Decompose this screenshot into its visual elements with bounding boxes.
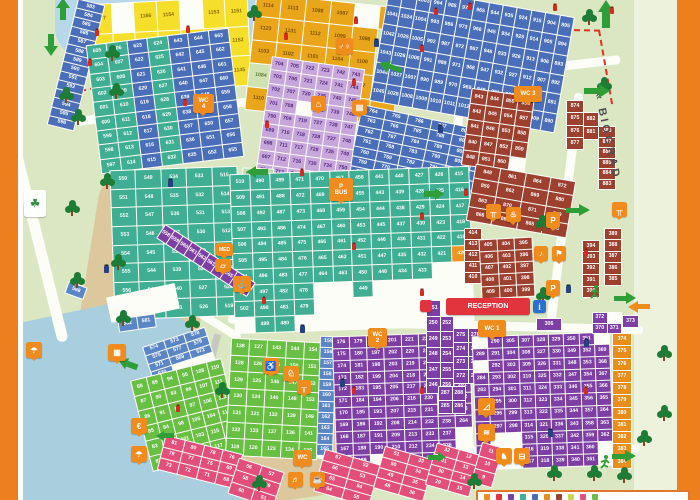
pitch-854: 854 <box>500 109 517 125</box>
pitch-294: 294 <box>490 385 505 397</box>
pitch-346: 346 <box>566 382 581 394</box>
pitch-612: 612 <box>117 127 138 143</box>
fire-hydrant-icon <box>464 190 468 196</box>
pitch-544: 544 <box>139 263 164 281</box>
pitch-581: 581 <box>137 315 156 329</box>
pitch-366: 366 <box>596 381 611 393</box>
fire-hydrant-icon <box>284 34 288 40</box>
pitch-717: 717 <box>291 141 307 155</box>
pitch-599: 599 <box>97 129 118 145</box>
pitch-454: 454 <box>351 202 370 218</box>
playground-pin-glyph: ◿ <box>483 402 489 411</box>
pitch-129: 129 <box>230 372 248 389</box>
pitch-122: 122 <box>227 422 245 439</box>
wc3-dog-pin: WC 3 <box>514 86 542 102</box>
pitch-422: 422 <box>432 231 451 247</box>
pitch-335: 335 <box>551 407 566 419</box>
pitch-859: 859 <box>511 141 528 157</box>
pitch-881: 881 <box>584 127 598 140</box>
pitch-264: 264 <box>455 416 471 427</box>
pitch-248: 248 <box>427 348 440 363</box>
pitch-341: 341 <box>568 442 583 454</box>
exchange-pin: € <box>131 418 147 434</box>
pitch-703: 703 <box>269 70 285 84</box>
pitch-367: 367 <box>596 369 611 381</box>
laundry-iron-pin: ▱ <box>215 259 231 272</box>
pitch-137: 137 <box>263 424 281 441</box>
pitch-620: 620 <box>133 81 154 97</box>
camp-logo: ☘ <box>24 190 46 217</box>
zone-brown-395: 4054043954064033964074023974084013984094… <box>478 237 535 300</box>
legend-swatch <box>556 494 562 500</box>
pitch-313: 313 <box>521 408 536 420</box>
pitch-448: 448 <box>373 265 392 281</box>
fire-hydrant-icon <box>584 250 588 256</box>
pitch-140: 140 <box>265 391 283 408</box>
pitch-476: 476 <box>293 252 312 268</box>
water-tap-pin-3: ╥ <box>297 380 311 394</box>
pitch-168: 168 <box>336 432 352 443</box>
pitch-219: 219 <box>402 358 418 369</box>
pitch-482: 482 <box>274 284 293 300</box>
pitch-323: 323 <box>536 395 551 407</box>
pitch-441: 441 <box>370 170 389 186</box>
tree-icon <box>103 176 112 185</box>
parking-pin-2-glyph: P <box>550 284 555 293</box>
pitch-187: 187 <box>353 431 369 442</box>
pitch-646: 646 <box>192 60 213 76</box>
pitch-739: 739 <box>327 106 343 120</box>
pitch-175: 175 <box>333 349 349 360</box>
pitch-605: 605 <box>87 44 108 60</box>
pitch-314: 314 <box>521 420 536 432</box>
reception-sign: RECEPTION <box>446 298 530 315</box>
water-tap-pin-2: ╥ <box>612 202 627 217</box>
pitch-330: 330 <box>549 346 564 358</box>
pitch-496: 496 <box>254 269 273 285</box>
pitch-361: 361 <box>583 454 598 466</box>
pitch-363: 363 <box>597 417 612 429</box>
zone-brown-874: 874875876877 <box>566 100 584 150</box>
water-point-icon <box>548 430 553 437</box>
running-man-icon <box>598 454 612 470</box>
pitch-895: 895 <box>557 16 573 37</box>
pitch-427: 427 <box>409 168 428 184</box>
pitch-356: 356 <box>581 394 596 406</box>
pitch-322: 322 <box>536 407 551 419</box>
pitch-655: 655 <box>222 143 243 159</box>
pitch-364: 364 <box>597 405 612 417</box>
tree-icon <box>73 275 82 284</box>
pitch-842: 842 <box>468 104 485 120</box>
pitch-530: 530 <box>189 224 214 242</box>
pitch-551: 551 <box>111 189 136 207</box>
pitch-209: 209 <box>387 430 403 441</box>
pitch-1112: 1112 <box>302 22 328 47</box>
beach-shower-pin: ☂ <box>26 342 42 358</box>
zone-purple-reception-c: 287288285286 <box>438 386 466 414</box>
bbq-pin-glyph: ♨ <box>510 210 517 219</box>
pitch-370: 370 <box>593 324 607 334</box>
pitch-348: 348 <box>565 358 580 370</box>
pitch-890: 890 <box>540 112 556 133</box>
pitch-138: 138 <box>231 339 249 356</box>
pitch-446: 446 <box>372 233 391 249</box>
pitch-444: 444 <box>371 201 390 217</box>
pitch-179: 179 <box>350 336 366 347</box>
camp-logo-glyph: ☘ <box>30 197 40 210</box>
first-aid-pin: MED <box>216 243 233 256</box>
legend-swatch <box>484 494 490 500</box>
laundry-iron-pin-glyph: ▱ <box>220 262 225 270</box>
zone-brown-861: 8498618648728508628698808638708718798668… <box>466 164 577 239</box>
pitch-624: 624 <box>148 36 169 52</box>
pitch-164: 164 <box>317 434 332 444</box>
pitch-598: 598 <box>99 143 120 159</box>
water-point-icon <box>374 40 379 47</box>
green-direction-arrow <box>598 0 614 28</box>
tree-icon <box>112 86 121 95</box>
pitch-254: 254 <box>441 348 454 363</box>
pitch-1123: 1123 <box>253 17 279 42</box>
pitch-408: 408 <box>481 275 498 287</box>
pitch-160: 160 <box>319 391 334 401</box>
pitch-625: 625 <box>149 51 170 67</box>
pitch-315: 315 <box>522 432 537 444</box>
pitch-319: 319 <box>537 444 552 456</box>
pitch-601: 601 <box>94 101 115 117</box>
bungalow-pin: ⌂ <box>311 96 326 111</box>
pitch-841: 841 <box>466 120 483 136</box>
zone-green-119: 1381271431441541281261451501511291251461… <box>225 338 323 461</box>
pitch-407: 407 <box>481 263 498 275</box>
trailer-pin: ⊟ <box>514 448 530 464</box>
pitch-652: 652 <box>202 145 223 161</box>
pitch-274: 274 <box>454 343 468 356</box>
pitch-658: 658 <box>217 100 238 116</box>
pitch-131: 131 <box>228 405 246 422</box>
pitch-392: 392 <box>583 264 599 274</box>
pitch-188: 188 <box>354 443 370 454</box>
pitch-439: 439 <box>390 185 409 201</box>
legend-swatch <box>508 494 514 500</box>
parking-pin: P <box>546 212 560 228</box>
pitch-405: 405 <box>480 240 497 252</box>
pitch-506: 506 <box>233 238 252 254</box>
swimming-pin: ≋ <box>478 424 495 441</box>
pitch-385: 385 <box>605 275 621 285</box>
pitch-502: 502 <box>235 302 254 318</box>
pitch-704: 704 <box>271 57 287 71</box>
tree-icon <box>620 470 629 479</box>
pitch-195: 195 <box>369 383 385 394</box>
pitch-287: 287 <box>439 387 452 400</box>
pitch-130: 130 <box>229 389 247 406</box>
bar-pin: ☕ <box>310 472 325 487</box>
pitch-460: 460 <box>331 219 350 235</box>
fire-hydrant-icon <box>610 8 614 14</box>
pitch-705: 705 <box>286 59 302 73</box>
pitch-206: 206 <box>386 395 402 406</box>
zone-purple-370: 372370371 <box>592 312 622 334</box>
pitch-386: 386 <box>605 263 621 273</box>
toilets-pin-glyph: ♂♀ <box>339 42 351 51</box>
pitch-858: 858 <box>513 126 530 142</box>
pitch-208: 208 <box>387 418 403 429</box>
fire-hydrant-icon <box>352 388 356 394</box>
pitch-741: 741 <box>331 79 347 93</box>
pitch-371: 371 <box>608 324 622 334</box>
pitch-469: 469 <box>310 188 329 204</box>
green-direction-arrow <box>584 84 610 98</box>
pitch-328: 328 <box>534 335 549 347</box>
pitch-641: 641 <box>171 62 192 78</box>
pitch-381: 381 <box>613 420 631 431</box>
pitch-723: 723 <box>317 64 333 78</box>
pitch-535: 535 <box>162 187 187 205</box>
pitch-466: 466 <box>312 235 331 251</box>
legend-swatch <box>544 494 550 500</box>
pitch-414: 414 <box>465 229 481 239</box>
pitch-438: 438 <box>391 201 410 217</box>
pitch-312: 312 <box>520 396 535 408</box>
pitch-221: 221 <box>401 334 417 345</box>
pitch-120: 120 <box>244 440 262 457</box>
tree-icon <box>470 476 479 485</box>
pitch-600: 600 <box>95 115 116 131</box>
green-direction-arrow <box>156 430 174 441</box>
pitch-698: 698 <box>260 137 276 151</box>
pitch-883: 883 <box>599 180 615 190</box>
pitch-185: 185 <box>352 408 368 419</box>
pitch-180: 180 <box>350 348 366 359</box>
pitch-350: 350 <box>564 334 579 346</box>
pitch-877: 877 <box>567 138 583 149</box>
pitch-627: 627 <box>153 79 174 95</box>
pitch-635: 635 <box>182 148 203 164</box>
pitch-349: 349 <box>564 346 579 358</box>
pitch-449: 449 <box>354 282 373 298</box>
water-point-icon <box>168 180 173 187</box>
pitch-875: 875 <box>567 113 583 124</box>
pitch-382: 382 <box>613 432 631 443</box>
pitch-1131: 1131 <box>277 19 303 44</box>
pitch-333: 333 <box>550 383 565 395</box>
pitch-293: 293 <box>489 373 504 385</box>
pitch-747: 747 <box>340 121 356 135</box>
pitch-455: 455 <box>350 186 369 202</box>
pitch-549: 549 <box>136 170 161 188</box>
pitch-288: 288 <box>453 387 466 400</box>
toilets-pin: ♂♀ <box>336 38 353 54</box>
pitch-169: 169 <box>336 420 352 431</box>
pitch-250: 250 <box>427 317 440 332</box>
pitch-163: 163 <box>318 423 333 433</box>
pitch-532: 532 <box>187 186 212 204</box>
pitch-701: 701 <box>265 97 281 111</box>
pitch-339: 339 <box>553 455 568 467</box>
pitch-610: 610 <box>114 98 135 114</box>
pitch-306: 306 <box>537 319 561 330</box>
pitch-729: 729 <box>306 144 322 158</box>
market-pin-glyph: ▦ <box>113 348 121 357</box>
pitch-644: 644 <box>188 31 209 47</box>
pitch-742: 742 <box>332 66 348 80</box>
pitch-299: 299 <box>506 408 521 420</box>
pitch-608: 608 <box>110 70 131 86</box>
pitch-411: 411 <box>465 262 481 272</box>
horse-carriage-pin-glyph: ♘ <box>287 368 295 379</box>
pitch-613: 613 <box>119 141 140 157</box>
trailer-pin-glyph: ⊟ <box>519 452 526 461</box>
sanitary-building-pin-glyph: ▤ <box>356 103 364 112</box>
pitch-645: 645 <box>190 46 211 62</box>
orange-direction-arrow <box>628 300 650 313</box>
fire-hydrant-icon <box>88 60 92 66</box>
green-direction-arrow <box>56 0 70 20</box>
pitch-616: 616 <box>139 138 160 154</box>
pitch-844: 844 <box>486 91 503 107</box>
pitch-659: 659 <box>215 86 236 102</box>
pitch-1166: 1166 <box>134 2 157 32</box>
pitch-194: 194 <box>369 395 385 406</box>
tree-icon <box>640 433 649 442</box>
pitch-626: 626 <box>151 65 172 81</box>
pitch-343: 343 <box>567 418 582 430</box>
wc2-pin-label: 2 <box>376 338 379 344</box>
pitch-484: 484 <box>273 253 292 269</box>
legend-swatch <box>568 494 574 500</box>
pitch-285: 285 <box>439 401 452 414</box>
green-direction-arrow <box>612 450 636 463</box>
bird-pin: ♪ <box>534 246 548 261</box>
pitch-397: 397 <box>516 261 533 273</box>
pitch-621: 621 <box>131 67 152 83</box>
pitch-362: 362 <box>598 429 613 441</box>
pitch-379: 379 <box>613 395 631 406</box>
marina-boat-pin: ⚓ <box>233 276 251 292</box>
pitch-845: 845 <box>484 106 501 122</box>
fire-hydrant-icon <box>420 46 424 52</box>
pitch-443: 443 <box>370 186 389 202</box>
pitch-325: 325 <box>535 371 550 383</box>
fire-hydrant-icon <box>420 388 424 394</box>
pitch-437: 437 <box>391 217 410 233</box>
pitch-436: 436 <box>392 233 411 249</box>
parking-pin-2: P <box>546 280 560 296</box>
pitch-283: 283 <box>474 385 489 397</box>
pitch-709: 709 <box>279 113 295 127</box>
pitch-204: 204 <box>385 371 401 382</box>
pitch-359: 359 <box>583 430 598 442</box>
pitch-380: 380 <box>613 408 631 419</box>
pitch-272: 272 <box>454 370 468 383</box>
pitch-894: 894 <box>554 35 570 56</box>
pitch-536: 536 <box>163 206 188 224</box>
pitch-410: 410 <box>465 273 481 283</box>
tree-icon <box>550 468 559 477</box>
pitch-318: 318 <box>538 456 553 468</box>
fire-hydrant-icon <box>265 122 269 128</box>
pitch-462: 462 <box>333 250 352 266</box>
pitch-463: 463 <box>333 266 352 282</box>
legend-swatch <box>580 494 586 500</box>
tree-icon <box>114 257 123 266</box>
pitch-338: 338 <box>553 443 568 455</box>
pitch-550: 550 <box>110 170 135 188</box>
pitch-628: 628 <box>155 93 176 109</box>
pitch-660: 660 <box>214 71 235 87</box>
pitch-431: 431 <box>412 232 431 248</box>
pitch-347: 347 <box>565 370 580 382</box>
pitch-892: 892 <box>547 73 563 94</box>
pitch-749: 749 <box>337 148 353 162</box>
pitch-193: 193 <box>369 407 385 418</box>
pitch-1088: 1088 <box>305 0 331 24</box>
pitch-434: 434 <box>393 264 412 280</box>
pitch-706: 706 <box>285 73 301 87</box>
pitch-123: 123 <box>262 441 280 458</box>
wc1-pin: WC 1 <box>478 320 506 337</box>
tree-icon <box>250 8 259 17</box>
pitch-748: 748 <box>338 135 354 149</box>
legend-swatch <box>520 494 526 500</box>
pitch-303: 303 <box>504 360 519 372</box>
pitch-494: 494 <box>252 237 271 253</box>
pitch-508: 508 <box>231 206 250 222</box>
pitch-451: 451 <box>353 250 372 266</box>
pitch-360: 360 <box>583 442 598 454</box>
pitch-230: 230 <box>420 393 436 404</box>
pitch-461: 461 <box>332 235 351 251</box>
pitch-423: 423 <box>431 215 450 231</box>
bus-parking-pin: PBUS <box>329 178 353 201</box>
accessible-wc-pin-glyph: ♿ <box>265 361 276 372</box>
pitch-876: 876 <box>567 126 583 137</box>
legend-swatch <box>532 494 538 500</box>
pitch-553: 553 <box>112 226 137 244</box>
tree-icon <box>74 112 83 121</box>
fire-hydrant-icon <box>420 290 424 296</box>
pitch-545: 545 <box>138 244 163 262</box>
pitch-846: 846 <box>482 122 499 138</box>
pitch-857: 857 <box>515 111 532 127</box>
bus-parking-pin-label: BUS <box>335 190 348 196</box>
building-marker <box>420 300 432 312</box>
pitch-874: 874 <box>567 101 583 112</box>
pitch-124: 124 <box>247 390 265 407</box>
pitch-722: 722 <box>302 61 318 75</box>
pitch-198: 198 <box>368 359 384 370</box>
pitch-656: 656 <box>221 128 242 144</box>
pitch-470: 470 <box>310 172 329 188</box>
pitch-275: 275 <box>454 329 468 342</box>
pitch-162: 162 <box>318 412 333 422</box>
pitch-292: 292 <box>489 361 504 373</box>
pitch-170: 170 <box>335 408 351 419</box>
pitch-291: 291 <box>488 348 503 360</box>
pitch-376: 376 <box>613 359 631 370</box>
pitch-253: 253 <box>441 332 454 347</box>
pitch-552: 552 <box>112 208 137 226</box>
pitch-161: 161 <box>318 402 333 412</box>
pitch-249: 249 <box>427 332 440 347</box>
pitch-719: 719 <box>294 115 310 129</box>
pitch-640: 640 <box>173 76 194 92</box>
pitch-507: 507 <box>232 222 251 238</box>
pitch-205: 205 <box>386 383 402 394</box>
pitch-284: 284 <box>474 373 489 385</box>
